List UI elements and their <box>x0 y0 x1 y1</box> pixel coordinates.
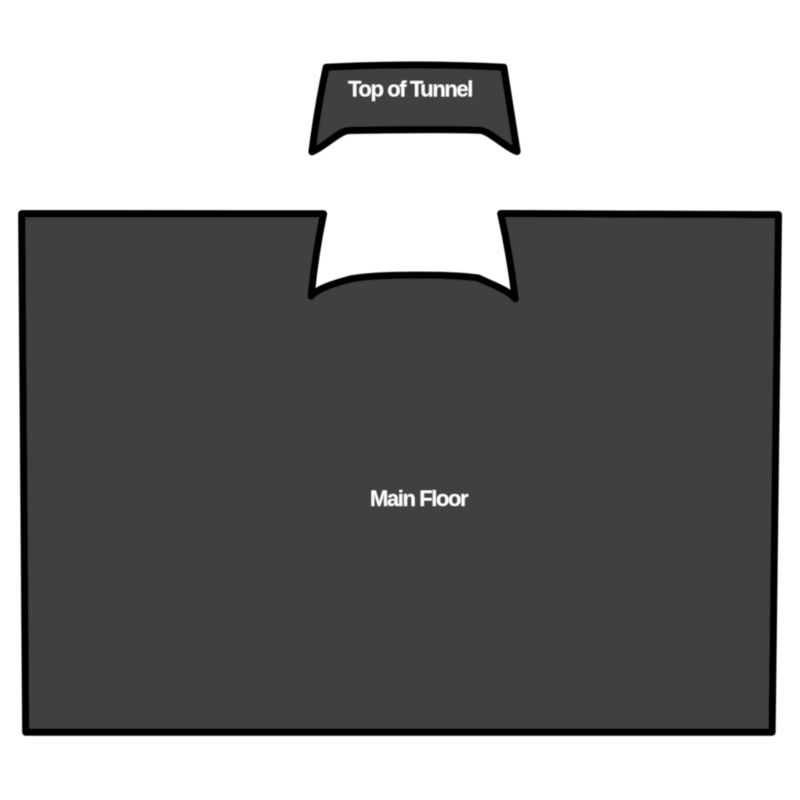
svg-text:Main Floor: Main Floor <box>370 486 469 511</box>
svg-text:Top of Tunnel: Top of Tunnel <box>348 76 472 101</box>
